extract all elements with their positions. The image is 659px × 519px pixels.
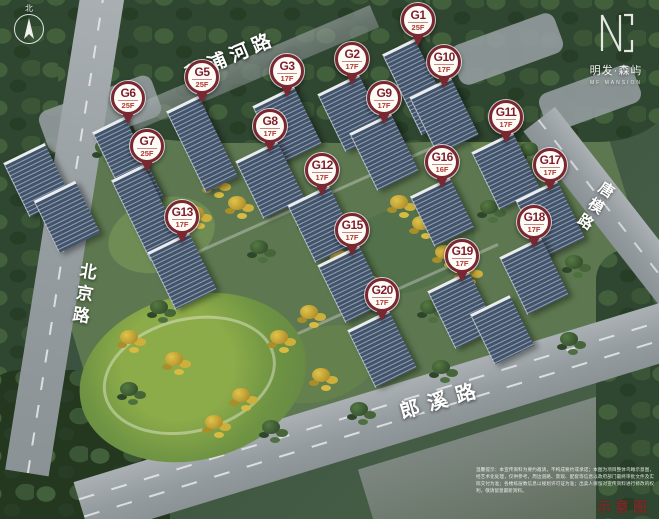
marker-id: G17 <box>540 154 561 168</box>
green-tree-cluster <box>250 240 268 254</box>
marker-floors: 17F <box>456 260 469 268</box>
building-marker-g9: G917F <box>367 81 401 124</box>
marker-floors: 17F <box>316 174 329 182</box>
marker-floors: 17F <box>544 169 557 177</box>
marker-circle: G1717F <box>533 148 567 182</box>
building-marker-g5: G525F <box>185 60 219 103</box>
marker-floors: 17F <box>438 66 451 74</box>
building-marker-g16: G1616F <box>425 145 459 188</box>
yellow-tree-cluster <box>390 195 408 209</box>
building-marker-g12: G1217F <box>305 153 339 196</box>
marker-tail <box>544 180 556 191</box>
marker-tail <box>346 74 358 85</box>
marker-floors: 25F <box>141 150 154 158</box>
building-marker-g10: G1017F <box>427 45 461 88</box>
marker-floors: 17F <box>346 234 359 242</box>
building-marker-g2: G217F <box>335 42 369 85</box>
marker-floors: 25F <box>412 24 425 32</box>
marker-circle: G817F <box>253 109 287 143</box>
marker-tail <box>122 113 134 124</box>
yellow-tree-cluster <box>270 330 288 344</box>
marker-circle: G2017F <box>365 278 399 312</box>
building-marker-g13: G1317F <box>165 200 199 243</box>
marker-tail <box>281 86 293 97</box>
brand-subtitle: MF MANSION <box>570 80 659 86</box>
marker-id: G10 <box>434 51 455 65</box>
building-marker-g7: G725F <box>130 129 164 172</box>
green-tree-cluster <box>350 402 368 416</box>
brand-name: 明发·森屿 <box>570 62 659 78</box>
yellow-tree-cluster <box>312 368 330 382</box>
green-tree-cluster <box>565 255 583 269</box>
marker-circle: G1817F <box>517 205 551 239</box>
marker-floors: 25F <box>122 102 135 110</box>
marker-tail <box>456 271 468 282</box>
marker-circle: G525F <box>185 60 219 94</box>
brand-logo: 明发·森屿 MF MANSION <box>570 12 659 86</box>
yellow-tree-cluster <box>165 352 183 366</box>
marker-tail <box>316 185 328 196</box>
marker-id: G15 <box>342 219 363 233</box>
marker-id: G19 <box>452 245 473 259</box>
marker-id: G6 <box>118 87 139 101</box>
yellow-tree-cluster <box>228 196 246 210</box>
disclaimer-text: 温馨提示：本宣传资料为要约邀请，不构成要约或承诺；本图为项目整体鸟瞰示意图，经艺… <box>476 466 654 494</box>
marker-circle: G1517F <box>335 213 369 247</box>
aerial-site-plan: 秋浦河路 北京路 郎溪路 唐模路 G125FG217FG317FG525FG62… <box>0 0 659 519</box>
building-marker-g20: G2017F <box>365 278 399 321</box>
marker-circle: G1917F <box>445 239 479 273</box>
yellow-tree-cluster <box>205 415 223 429</box>
building-marker-g3: G317F <box>270 54 304 97</box>
marker-tail <box>346 245 358 256</box>
building-marker-g17: G1717F <box>533 148 567 191</box>
marker-floors: 17F <box>376 299 389 307</box>
marker-circle: G1616F <box>425 145 459 179</box>
green-tree-cluster <box>432 360 450 374</box>
green-tree-cluster <box>120 382 138 396</box>
marker-floors: 25F <box>196 81 209 89</box>
marker-tail <box>141 161 153 172</box>
marker-floors: 17F <box>176 221 189 229</box>
building-marker-g1: G125F <box>401 3 435 46</box>
marker-tail <box>412 35 424 46</box>
marker-floors: 16F <box>436 166 449 174</box>
marker-id: G18 <box>524 211 545 225</box>
marker-id: G9 <box>374 87 395 101</box>
green-tree-cluster <box>150 300 168 314</box>
marker-floors: 17F <box>500 121 513 129</box>
marker-id: G1 <box>408 9 429 23</box>
marker-floors: 17F <box>264 130 277 138</box>
schematic-stamp: 示意图 <box>597 497 651 517</box>
compass-north-label: 北 <box>12 5 46 13</box>
building-marker-g19: G1917F <box>445 239 479 282</box>
marker-id: G7 <box>137 135 158 149</box>
marker-circle: G217F <box>335 42 369 76</box>
marker-tail <box>196 92 208 103</box>
marker-id: G8 <box>260 115 281 129</box>
marker-floors: 17F <box>346 63 359 71</box>
building-marker-g6: G625F <box>111 81 145 124</box>
marker-circle: G1217F <box>305 153 339 187</box>
marker-floors: 17F <box>528 226 541 234</box>
marker-circle: G1117F <box>489 100 523 134</box>
building-marker-g11: G1117F <box>489 100 523 143</box>
marker-floors: 17F <box>281 75 294 83</box>
compass-needle-icon <box>14 14 44 44</box>
marker-id: G16 <box>432 151 453 165</box>
green-tree-cluster <box>262 420 280 434</box>
marker-circle: G1317F <box>165 200 199 234</box>
yellow-tree-cluster <box>120 330 138 344</box>
marker-tail <box>376 310 388 321</box>
marker-tail <box>500 132 512 143</box>
marker-tail <box>264 141 276 152</box>
marker-tail <box>438 77 450 88</box>
marker-floors: 17F <box>378 102 391 110</box>
yellow-tree-cluster <box>300 305 318 319</box>
building-marker-g15: G1517F <box>335 213 369 256</box>
marker-circle: G317F <box>270 54 304 88</box>
marker-id: G3 <box>277 60 298 74</box>
building-marker-g8: G817F <box>253 109 287 152</box>
marker-tail <box>436 177 448 188</box>
building-marker-g18: G1817F <box>517 205 551 248</box>
marker-id: G20 <box>372 284 393 298</box>
marker-tail <box>528 237 540 248</box>
marker-circle: G1017F <box>427 45 461 79</box>
yellow-tree-cluster <box>232 388 250 402</box>
marker-circle: G125F <box>401 3 435 37</box>
green-tree-cluster <box>560 332 578 346</box>
marker-tail <box>176 232 188 243</box>
marker-id: G12 <box>312 159 333 173</box>
marker-circle: G917F <box>367 81 401 115</box>
marker-id: G2 <box>342 48 363 62</box>
marker-tail <box>378 113 390 124</box>
marker-id: G5 <box>192 66 213 80</box>
brand-logo-icon <box>594 12 638 54</box>
marker-id: G13 <box>172 206 193 220</box>
marker-circle: G625F <box>111 81 145 115</box>
marker-id: G11 <box>496 106 517 120</box>
marker-circle: G725F <box>130 129 164 163</box>
compass: 北 <box>12 5 46 44</box>
